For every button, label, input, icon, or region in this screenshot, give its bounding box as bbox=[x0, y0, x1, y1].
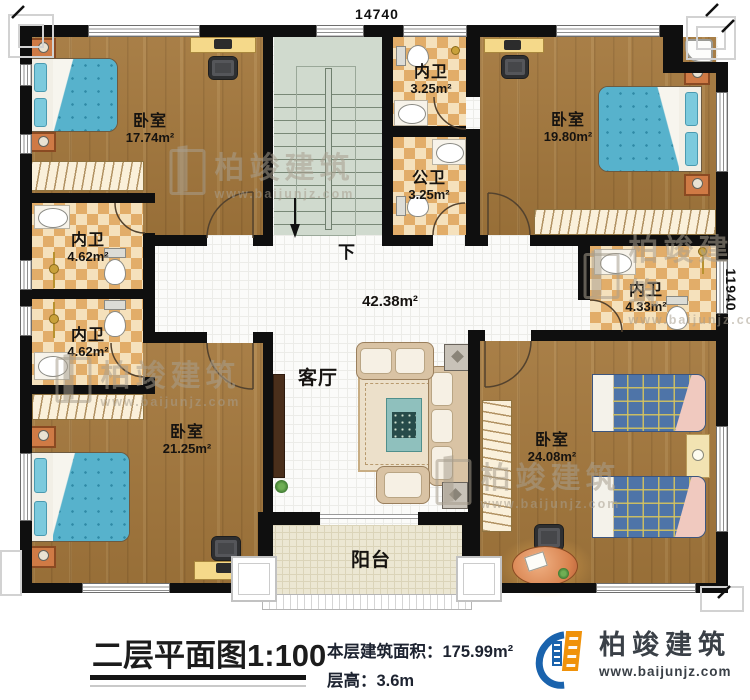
window bbox=[403, 25, 467, 37]
sink bbox=[38, 356, 68, 377]
bed-pillow bbox=[34, 98, 47, 127]
wall bbox=[145, 235, 207, 246]
window bbox=[20, 306, 32, 336]
wall bbox=[663, 25, 683, 73]
room-name: 内卫 bbox=[410, 64, 451, 82]
balcony-sliding-door bbox=[320, 514, 418, 519]
nightstand bbox=[686, 434, 710, 478]
window bbox=[82, 583, 170, 593]
room-name: 内卫 bbox=[625, 282, 666, 300]
toilet-tank bbox=[104, 300, 126, 310]
sofa-cushion bbox=[431, 409, 453, 443]
bed-sheet-fold bbox=[53, 453, 83, 541]
toilet-tank bbox=[396, 196, 406, 216]
company-logo-text: 柏竣建筑 www.baijunjz.com bbox=[599, 632, 732, 679]
window bbox=[20, 64, 32, 86]
wall bbox=[382, 235, 433, 246]
window bbox=[20, 260, 32, 290]
bed-sheet-fold bbox=[53, 59, 83, 131]
computer-icon bbox=[504, 40, 521, 50]
room-area: 19.80m² bbox=[544, 130, 592, 145]
corner-ornament bbox=[696, 26, 726, 50]
bed-pillow bbox=[593, 477, 614, 537]
room-area: 4.62m² bbox=[67, 250, 108, 265]
shower-head-icon bbox=[49, 314, 59, 324]
coffee-table-tray bbox=[392, 412, 416, 438]
room-label-bath-top: 内卫 3.25m² bbox=[410, 64, 451, 96]
wall bbox=[468, 330, 485, 341]
sink bbox=[398, 104, 426, 124]
sofa-cushion bbox=[395, 348, 425, 374]
wall bbox=[530, 235, 718, 246]
plant-icon bbox=[275, 480, 288, 493]
wall bbox=[20, 385, 143, 394]
nightstand bbox=[684, 174, 710, 196]
corner-ornament bbox=[18, 24, 44, 48]
computer-icon bbox=[214, 39, 232, 49]
window bbox=[20, 453, 32, 521]
company-logo-icon bbox=[537, 626, 591, 684]
room-label-bath-right: 内卫 4.33m² bbox=[625, 282, 666, 314]
wall bbox=[531, 330, 718, 341]
nightstand bbox=[30, 546, 56, 568]
sink bbox=[38, 208, 68, 228]
wall bbox=[263, 25, 273, 246]
plan-title: 二层平面图1:100 bbox=[92, 630, 326, 675]
room-name: 卧室 bbox=[126, 113, 174, 131]
hall-area-label: 42.38m² bbox=[362, 294, 418, 311]
wall bbox=[382, 25, 393, 246]
wall bbox=[466, 25, 480, 97]
double-bed-bl bbox=[30, 452, 130, 542]
title-underline bbox=[90, 675, 306, 680]
title-underline-shadow bbox=[90, 685, 306, 687]
room-name: 卧室 bbox=[528, 432, 576, 450]
room-name: 卧室 bbox=[163, 424, 211, 442]
room-label-bedroom-br: 卧室 24.08m² bbox=[528, 432, 576, 464]
railing-pillar bbox=[231, 556, 277, 602]
railing-pillar bbox=[456, 556, 502, 602]
wall bbox=[143, 377, 155, 394]
room-name: 阳台 bbox=[351, 550, 391, 571]
stairs-down-label: 下 bbox=[338, 238, 355, 263]
nightstand bbox=[30, 426, 56, 448]
room-name: 客厅 bbox=[298, 368, 338, 389]
side-table bbox=[444, 344, 470, 371]
double-bed-tl bbox=[30, 58, 118, 132]
shower-head-icon bbox=[49, 264, 59, 274]
company-name: 柏竣建筑 bbox=[599, 632, 732, 659]
room-label-bedroom-tl: 卧室 17.74m² bbox=[126, 113, 174, 145]
logo-building-blue-icon bbox=[552, 641, 562, 666]
wall bbox=[143, 332, 207, 343]
wall bbox=[20, 193, 145, 203]
wall bbox=[466, 129, 480, 246]
room-label-bath-public: 公卫 3.25m² bbox=[408, 170, 449, 202]
window bbox=[596, 583, 696, 593]
room-area: 3.25m² bbox=[410, 82, 451, 97]
window bbox=[716, 92, 728, 172]
bed-pillow bbox=[34, 501, 47, 536]
bed-sheet-fold bbox=[649, 87, 679, 171]
wall bbox=[578, 246, 590, 300]
wall bbox=[393, 126, 466, 137]
room-label-bedroom-bl: 卧室 21.25m² bbox=[163, 424, 211, 456]
towel-ring-icon bbox=[698, 247, 707, 256]
room-name: 内卫 bbox=[67, 327, 108, 345]
sofa-cushion bbox=[431, 372, 453, 406]
floor-height-text: 层高：3.6m bbox=[327, 667, 513, 696]
sofa-cushion bbox=[360, 348, 392, 374]
nightstand bbox=[30, 132, 56, 152]
caption-bar: 二层平面图1:100 本层建筑面积：175.99m² 层高：3.6m 柏竣建筑 … bbox=[0, 618, 750, 697]
window bbox=[556, 25, 660, 37]
closet-bedroom-tl bbox=[30, 161, 144, 191]
plant-icon bbox=[558, 568, 569, 579]
sofa-cushion bbox=[431, 446, 453, 480]
room-area: 24.08m² bbox=[528, 450, 576, 465]
tv-cabinet bbox=[273, 374, 285, 478]
balcony-railing bbox=[262, 594, 472, 610]
room-area: 4.62m² bbox=[67, 345, 108, 360]
room-label-balcony: 阳台 bbox=[351, 550, 391, 571]
wall bbox=[681, 62, 718, 73]
wall bbox=[258, 512, 320, 525]
plan-meta: 本层建筑面积：175.99m² 层高：3.6m bbox=[327, 638, 513, 696]
stair-handrail bbox=[325, 68, 332, 230]
wall bbox=[418, 512, 470, 525]
window bbox=[716, 426, 728, 532]
window bbox=[20, 134, 32, 154]
room-name: 卧室 bbox=[544, 112, 592, 130]
sink bbox=[600, 253, 632, 274]
room-area: 21.25m² bbox=[163, 442, 211, 457]
twin-bed bbox=[592, 374, 706, 432]
sink bbox=[436, 143, 464, 163]
double-bed-tr bbox=[598, 86, 702, 172]
window bbox=[316, 25, 364, 37]
wall bbox=[253, 235, 273, 246]
room-name: 内卫 bbox=[67, 232, 108, 250]
company-url: www.baijunjz.com bbox=[599, 664, 732, 679]
faucet-icon bbox=[451, 46, 460, 55]
twin-bed bbox=[592, 476, 706, 538]
bed-pillow bbox=[34, 63, 47, 92]
toilet-tank bbox=[666, 296, 688, 305]
bed-pillow bbox=[685, 92, 698, 126]
bed-pillow bbox=[593, 375, 614, 431]
wall bbox=[20, 289, 143, 299]
dimension-right: 11940 bbox=[723, 264, 739, 316]
wall bbox=[143, 233, 155, 343]
dimension-top: 14740 bbox=[340, 6, 414, 22]
window bbox=[88, 25, 200, 37]
room-label-bath-left-lower: 内卫 4.62m² bbox=[67, 327, 108, 359]
room-area: 4.33m² bbox=[625, 300, 666, 315]
bed-pillow bbox=[34, 458, 47, 493]
bed-pillow bbox=[685, 132, 698, 166]
room-label-bedroom-tr: 卧室 19.80m² bbox=[544, 112, 592, 144]
company-logo: 柏竣建筑 www.baijunjz.com bbox=[537, 626, 732, 684]
room-label-bath-left-upper: 内卫 4.62m² bbox=[67, 232, 108, 264]
desk-chair bbox=[501, 55, 529, 79]
corner-ornament bbox=[0, 550, 22, 596]
side-table bbox=[442, 482, 468, 509]
room-label-living: 客厅 bbox=[298, 368, 338, 389]
floor-plan: 卧室 17.74m² 内卫 3.25m² 卧室 19.80m² 公卫 3.25m… bbox=[0, 0, 750, 618]
closet-bedroom-tr bbox=[534, 209, 716, 235]
wall bbox=[465, 235, 488, 246]
floor-area-text: 本层建筑面积：175.99m² bbox=[327, 638, 513, 667]
toilet-bowl bbox=[666, 306, 688, 330]
room-area: 42.38m² bbox=[362, 294, 418, 311]
room-name: 公卫 bbox=[408, 170, 449, 188]
corner-ornament bbox=[700, 586, 744, 612]
wardrobe-bedroom-bl bbox=[32, 394, 144, 420]
closet-bedroom-br bbox=[482, 400, 512, 532]
room-area: 17.74m² bbox=[126, 131, 174, 146]
toilet-tank bbox=[396, 46, 406, 66]
desk-chair bbox=[208, 56, 238, 80]
ottoman-cushion bbox=[384, 472, 422, 498]
room-area: 3.25m² bbox=[408, 188, 449, 203]
